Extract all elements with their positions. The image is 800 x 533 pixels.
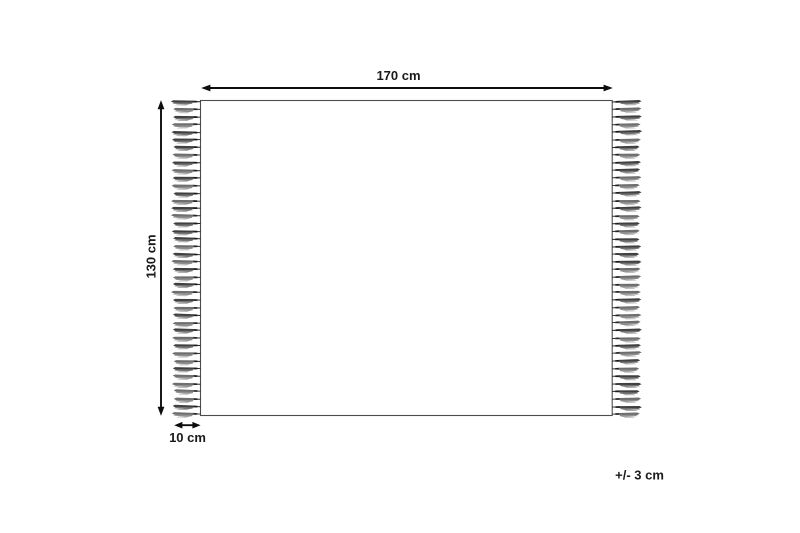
svg-text:130 cm: 130 cm — [144, 234, 159, 278]
svg-text:10 cm: 10 cm — [169, 430, 206, 445]
svg-text:+/- 3 cm: +/- 3 cm — [615, 468, 664, 483]
svg-text:170 cm: 170 cm — [376, 68, 420, 83]
